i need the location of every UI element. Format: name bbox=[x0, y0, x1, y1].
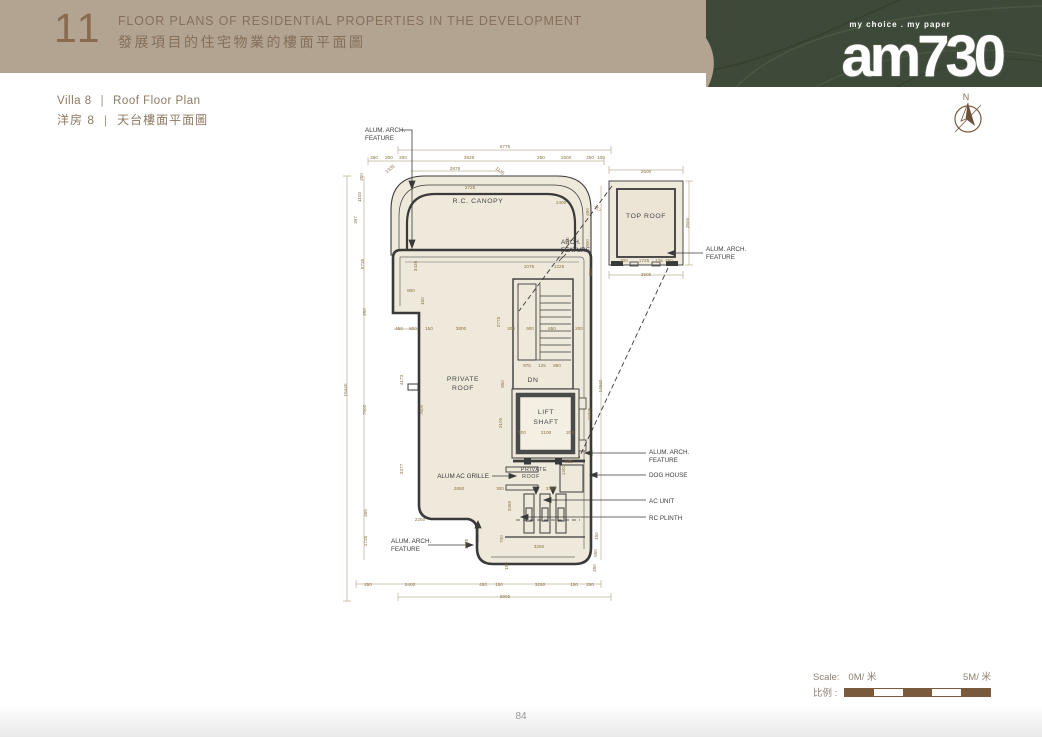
scale-bar-row: 比例 : bbox=[813, 685, 991, 699]
dim-label: 150 bbox=[570, 582, 578, 587]
dim-label: 2775 bbox=[496, 316, 501, 327]
room-label: ROOF bbox=[452, 385, 474, 392]
dim-label: 2500 bbox=[641, 169, 652, 174]
dim-label: 850 bbox=[553, 363, 561, 368]
page-title-en: FLOOR PLANS OF RESIDENTIAL PROPERTIES IN… bbox=[118, 14, 582, 28]
lift-shaft bbox=[512, 389, 586, 458]
rc-canopy bbox=[391, 176, 591, 255]
header-band: 11 FLOOR PLANS OF RESIDENTIAL PROPERTIES… bbox=[0, 0, 706, 73]
page-title-zh: 發展項目的住宅物業的樓面平面圖 bbox=[118, 32, 582, 52]
dim-label: 200 bbox=[518, 430, 526, 435]
logo-name: am730 bbox=[841, 29, 1002, 84]
dim-label: 950 bbox=[500, 380, 505, 388]
dim-label: 2875 bbox=[450, 166, 461, 171]
dim-label: 125 bbox=[655, 258, 663, 263]
dog-house bbox=[560, 465, 583, 492]
compass-north-label: N bbox=[963, 92, 970, 102]
header-titles: FLOOR PLANS OF RESIDENTIAL PROPERTIES IN… bbox=[118, 14, 582, 52]
dim-label: 975 bbox=[523, 363, 531, 368]
callout-label: RC PLINTH bbox=[649, 515, 683, 522]
dim-label: 100 bbox=[597, 155, 605, 160]
dim-label: 200 bbox=[399, 155, 407, 160]
room-label: LIFT bbox=[538, 409, 554, 416]
callout-label: FEATURE bbox=[706, 254, 735, 261]
dim-label: 1725 bbox=[639, 258, 650, 263]
dim-label: 1300 bbox=[561, 464, 566, 475]
scale-segment bbox=[874, 689, 903, 696]
callout-label: AC UNIT bbox=[649, 498, 674, 505]
brochure-page: 11 FLOOR PLANS OF RESIDENTIAL PROPERTIES… bbox=[0, 0, 1042, 737]
dim-label: 3377 bbox=[399, 463, 404, 474]
stairwell bbox=[513, 279, 573, 389]
dim-label: 3250 bbox=[535, 582, 546, 587]
subtitle-en: Villa 8 | Roof Floor Plan bbox=[57, 95, 208, 107]
dim-label: 1725 bbox=[363, 535, 368, 546]
room-label: ROOF bbox=[522, 474, 540, 480]
dim-label: 1075 bbox=[524, 264, 535, 269]
dim-label: 3435 bbox=[413, 260, 418, 271]
dim-label: 3925 bbox=[464, 155, 475, 160]
dim-label: 150 bbox=[594, 532, 599, 540]
dim-label: 150 bbox=[420, 297, 425, 305]
dim-label: 200 bbox=[566, 430, 574, 435]
dim-label: 3800 bbox=[456, 326, 467, 331]
ac-grille bbox=[506, 467, 538, 472]
subtitle-separator: | bbox=[104, 113, 108, 127]
scale-label-zh: 比例 : bbox=[813, 685, 837, 699]
dim-label: 800 bbox=[409, 326, 417, 331]
dim-label: 7600 bbox=[419, 404, 424, 415]
dim-label: 15440 bbox=[343, 383, 348, 396]
room-label: PRIVATE bbox=[447, 376, 479, 383]
room-labels: R.C. CANOPYPRIVATEROOFDNLIFTSHAFTPRIVATE… bbox=[447, 198, 666, 480]
subtitle-zh: 洋房 8 | 天台樓面平面圖 bbox=[57, 111, 208, 128]
ac-units bbox=[524, 494, 566, 533]
dim-label: 2400 bbox=[405, 582, 416, 587]
dim-label: 767 bbox=[593, 203, 602, 213]
dim-label: 2100 bbox=[498, 417, 503, 428]
scale-segment bbox=[845, 689, 874, 696]
dim-label: 200 bbox=[620, 258, 628, 263]
dim-label: 250 bbox=[359, 173, 364, 181]
room-label: DN bbox=[527, 377, 538, 384]
dimension-labels: 6775250200200392525016002501002875272514… bbox=[343, 144, 690, 599]
scale-end-label: 5M/ 米 bbox=[963, 669, 991, 683]
dim-label: 1400 bbox=[556, 200, 567, 205]
dim-label: 1600 bbox=[561, 155, 572, 160]
dim-label: 200 bbox=[507, 326, 515, 331]
dim-label: 14560 bbox=[598, 379, 603, 392]
dim-label: 10225 bbox=[587, 407, 592, 420]
dim-label: 700 bbox=[499, 535, 504, 543]
top-roof-detail bbox=[609, 181, 683, 266]
dim-label: 450 bbox=[592, 564, 597, 572]
dim-label: 7500 bbox=[362, 404, 367, 415]
dim-label: 250 bbox=[370, 155, 378, 160]
dim-label: 150 bbox=[425, 326, 433, 331]
callout-label: ALUM AC GRILLE bbox=[437, 473, 489, 480]
callout-leaders bbox=[400, 130, 703, 548]
callout-label: ALUM. ARCH. bbox=[649, 449, 689, 456]
dim-label: 397 bbox=[353, 216, 358, 224]
dim-label: 650 bbox=[548, 326, 556, 331]
dim-label: 4173 bbox=[399, 374, 404, 385]
dim-label: 125 bbox=[538, 363, 546, 368]
page-number: 84 bbox=[0, 711, 1042, 722]
scale-start-label: 0M/ 米 bbox=[848, 669, 876, 683]
dim-label: 800 bbox=[588, 268, 593, 276]
dim-label: 3250 bbox=[534, 544, 545, 549]
scale-segment bbox=[961, 689, 990, 696]
scale-labels-row: Scale: 0M/ 米 5M/ 米 bbox=[813, 669, 991, 683]
dim-label: 535 bbox=[565, 459, 573, 464]
dim-label: 5735 bbox=[360, 258, 365, 269]
north-compass: N bbox=[955, 92, 981, 132]
callout-label: DOG HOUSE bbox=[649, 472, 688, 479]
dim-label: 2500 bbox=[641, 272, 652, 277]
ac-grille bbox=[506, 485, 538, 490]
dim-label: 6900 bbox=[500, 594, 511, 599]
dim-label: 250 bbox=[362, 308, 367, 316]
dim-label: 3350 bbox=[507, 500, 512, 511]
floor-label-en: Roof Floor Plan bbox=[113, 95, 200, 107]
dim-label: 550 bbox=[593, 549, 598, 557]
dim-label: 150 bbox=[495, 582, 503, 587]
room-label: R.C. CANOPY bbox=[453, 198, 504, 205]
callout-label: FEATURE bbox=[391, 546, 420, 553]
dim-label: 800 bbox=[407, 288, 415, 293]
room-label: TOP ROOF bbox=[626, 213, 666, 220]
callout-label: ALUM. ARCH. bbox=[706, 246, 746, 253]
room-label: PRIVATE bbox=[521, 467, 547, 473]
dim-label: 2850 bbox=[454, 486, 465, 491]
dim-label: 150 bbox=[504, 562, 509, 570]
callout-label: ALUM. ARCH. bbox=[365, 127, 405, 134]
dim-label: 450 bbox=[395, 326, 403, 331]
dim-label: 250 bbox=[364, 582, 372, 587]
dim-label: 2600 bbox=[685, 217, 690, 228]
dim-label: 900 bbox=[585, 239, 590, 247]
dim-label: 450 bbox=[665, 258, 673, 263]
dim-label: 2725 bbox=[465, 185, 476, 190]
dim-label: 1725 bbox=[464, 538, 469, 549]
villa-label-en: Villa 8 bbox=[57, 95, 92, 107]
scale-bar: Scale: 0M/ 米 5M/ 米 比例 : bbox=[813, 669, 991, 699]
section-number: 11 bbox=[54, 8, 103, 49]
dim-label: 250 bbox=[537, 155, 545, 160]
dim-label: 200 bbox=[575, 326, 583, 331]
scale-segment bbox=[932, 689, 961, 696]
dim-label: 900 bbox=[526, 326, 534, 331]
am730-logo: my choice . my paper am730 bbox=[841, 20, 1002, 84]
dim-label: 450 bbox=[479, 582, 487, 587]
plan-subtitle: Villa 8 | Roof Floor Plan 洋房 8 | 天台樓面平面圖 bbox=[57, 95, 208, 132]
projection-dashed-lines bbox=[519, 186, 668, 458]
callout-label: FEATURE bbox=[365, 135, 394, 142]
main-roof-outline bbox=[393, 250, 591, 564]
scale-bar-graphic bbox=[844, 688, 991, 697]
dim-label: 3350 bbox=[546, 486, 557, 491]
callout-labels: ALUM. ARCH.FEATUREARCH.FEATUREALUM. ARCH… bbox=[365, 127, 746, 553]
lower-roof-equipment bbox=[505, 458, 585, 538]
dim-label: 1335 bbox=[384, 163, 396, 174]
room-label: SHAFT bbox=[533, 419, 558, 426]
dim-label: 455 bbox=[363, 509, 368, 517]
dim-label: 6775 bbox=[500, 144, 511, 149]
dim-label: 2100 bbox=[541, 430, 552, 435]
scale-label-en: Scale: bbox=[813, 672, 839, 683]
villa-label-zh: 洋房 8 bbox=[57, 111, 95, 128]
dim-label: 1103 bbox=[357, 192, 362, 202]
floor-label-zh: 天台樓面平面圖 bbox=[117, 111, 208, 128]
dim-label: 2250 bbox=[415, 517, 426, 522]
dim-label: 200 bbox=[385, 155, 393, 160]
callout-label: FEATURE bbox=[649, 457, 678, 464]
dim-label: 1135 bbox=[494, 166, 505, 177]
dim-label: 150 bbox=[565, 237, 570, 245]
dim-label: 1225 bbox=[554, 264, 565, 269]
callout-label: ALUM. ARCH. bbox=[391, 538, 431, 545]
dim-label: 250 bbox=[586, 582, 594, 587]
dimension-lines bbox=[343, 146, 693, 601]
dim-label: 450 bbox=[585, 208, 590, 216]
scale-segment bbox=[903, 689, 932, 696]
subtitle-separator: | bbox=[101, 95, 105, 107]
callout-label: FEATURE bbox=[561, 247, 590, 254]
callout-label: ARCH. bbox=[561, 239, 581, 246]
dim-label: 300 bbox=[496, 486, 504, 491]
dim-label: 250 bbox=[586, 155, 594, 160]
